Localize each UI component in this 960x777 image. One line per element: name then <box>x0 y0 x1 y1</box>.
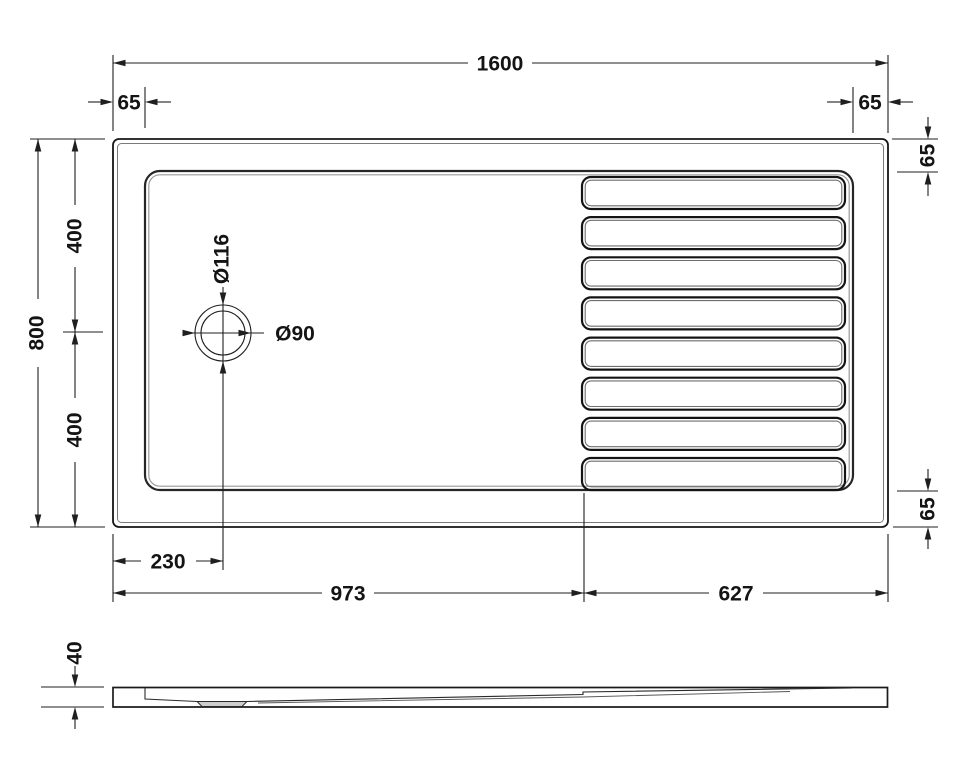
arrowhead <box>925 172 932 185</box>
dim-rim-left-group: 65 <box>88 87 171 128</box>
arrowhead <box>72 675 79 688</box>
dim-smooth-zone-group: 973 <box>113 493 584 606</box>
dim-drain-outer: Ø116 <box>211 234 234 284</box>
dim-rim-right: 65 <box>858 92 882 115</box>
arrowhead <box>584 590 597 597</box>
dim-rim-right-group: 65 <box>827 87 913 133</box>
arrowhead <box>113 590 126 597</box>
profile-floor-line-2 <box>258 692 790 704</box>
drain-waste: Ø116 Ø90 <box>183 234 315 570</box>
rib <box>582 458 845 490</box>
rib <box>582 338 845 370</box>
arrowhead <box>72 707 79 720</box>
arrowhead <box>72 320 79 333</box>
dim-overall-width-group: 1600 <box>113 53 888 134</box>
arrowhead <box>72 515 79 528</box>
anti-slip-ribs <box>582 177 845 490</box>
profile-floor-line <box>247 688 852 702</box>
dim-depth-upper-group: 400 <box>64 139 87 332</box>
arrowhead <box>925 127 932 140</box>
arrowhead <box>72 139 79 152</box>
plan-view: Ø116 Ø90 1600 65 <box>26 53 940 606</box>
dim-smooth-zone: 973 <box>330 583 365 606</box>
arrowhead <box>572 590 585 597</box>
side-view: 40 <box>41 641 888 729</box>
arrowhead <box>220 293 227 306</box>
technical-drawing: Ø116 Ø90 1600 65 <box>0 0 960 777</box>
dim-ribbed-zone-group: 627 <box>584 534 888 606</box>
side-profile <box>113 688 888 708</box>
dim-tray-height: 40 <box>64 641 87 664</box>
dim-tray-height-group: 40 <box>41 641 104 729</box>
arrowhead <box>876 60 889 67</box>
arrowhead <box>888 99 901 106</box>
arrowhead <box>925 527 932 540</box>
dim-depth-upper: 400 <box>64 218 87 253</box>
arrowhead <box>113 60 126 67</box>
rib <box>582 217 845 249</box>
rib <box>582 297 845 329</box>
dim-overall-width: 1600 <box>477 53 524 76</box>
dim-drain-inner: Ø90 <box>275 323 315 346</box>
dim-rim-top-right: 65 <box>917 144 940 168</box>
rib <box>582 378 845 410</box>
profile-step <box>145 688 197 702</box>
arrowhead <box>220 361 227 374</box>
rib <box>582 257 845 289</box>
arrowhead <box>35 515 42 528</box>
rib <box>582 177 845 209</box>
dim-rim-left: 65 <box>117 92 141 115</box>
arrowhead <box>113 558 126 565</box>
dim-rim-top-right-group: 65 <box>892 117 940 196</box>
arrowhead <box>211 558 224 565</box>
dim-drain-offset-group: 230 <box>113 534 223 602</box>
dim-rim-bottom-right-group: 65 <box>893 469 940 549</box>
arrowhead <box>35 139 42 152</box>
arrowhead <box>841 99 854 106</box>
dim-ribbed-zone: 627 <box>718 583 753 606</box>
dim-depth-lower-group: 400 <box>63 332 103 527</box>
arrowhead <box>101 99 114 106</box>
dim-overall-depth: 800 <box>26 315 49 350</box>
rib <box>582 418 845 450</box>
drain-plate <box>197 702 247 707</box>
dim-depth-lower: 400 <box>64 412 87 447</box>
arrowhead <box>145 99 158 106</box>
arrowhead <box>925 479 932 492</box>
dim-overall-depth-group: 800 <box>26 139 106 527</box>
dim-rim-bottom-right: 65 <box>917 497 940 521</box>
arrowhead <box>876 590 889 597</box>
arrowhead <box>183 330 196 337</box>
dim-drain-offset: 230 <box>150 551 185 574</box>
arrowhead <box>72 332 79 345</box>
